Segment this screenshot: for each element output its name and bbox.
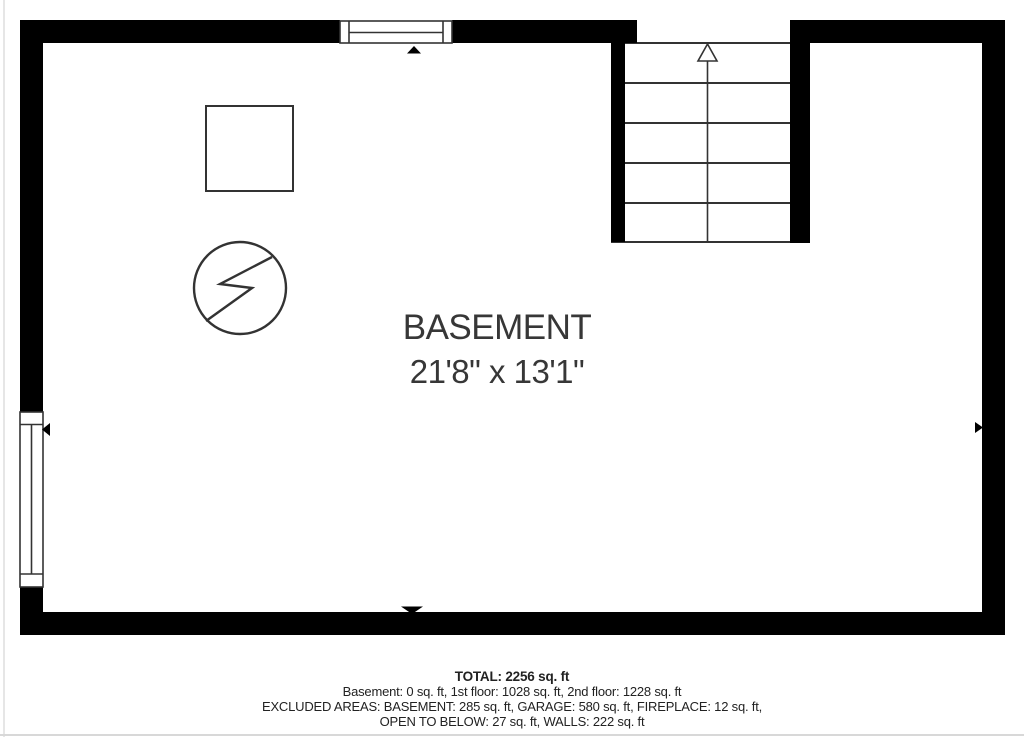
floor-areas-text: Basement: 0 sq. ft, 1st floor: 1028 sq. … — [0, 685, 1024, 700]
room-label: BASEMENT — [297, 309, 697, 348]
window-top — [340, 21, 452, 43]
total-area-text: TOTAL: 2256 sq. ft — [0, 670, 1024, 685]
wall-top-left — [20, 20, 340, 43]
stair-up-arrow-icon — [698, 44, 717, 61]
page-left-edge — [3, 0, 5, 737]
page-bottom-edge — [0, 734, 1024, 736]
wall-bottom — [20, 612, 1005, 635]
stairs — [611, 43, 810, 242]
excluded-areas-text-line2: OPEN TO BELOW: 27 sq. ft, WALLS: 222 sq.… — [0, 715, 1024, 730]
wall-left-upper — [20, 20, 43, 412]
floorplan-page: BASEMENT 21'8" x 13'1" TOTAL: 2256 sq. f… — [0, 0, 1024, 737]
wall-right — [982, 20, 1005, 635]
electrical-bolt-symbol-icon — [194, 242, 286, 334]
wall-top-right — [790, 20, 1005, 43]
stair-wall-right — [790, 43, 810, 243]
window-left — [20, 412, 43, 587]
utility-box — [206, 106, 293, 191]
stair-wall-left — [611, 43, 625, 242]
dimension-arrow-right-icon — [975, 422, 983, 433]
area-summary: TOTAL: 2256 sq. ft Basement: 0 sq. ft, 1… — [0, 670, 1024, 730]
wall-top-middle — [452, 20, 637, 43]
room-dimensions: 21'8" x 13'1" — [297, 354, 697, 390]
excluded-areas-text-line1: EXCLUDED AREAS: BASEMENT: 285 sq. ft, GA… — [0, 700, 1024, 715]
dimension-arrow-up-icon — [407, 46, 421, 54]
